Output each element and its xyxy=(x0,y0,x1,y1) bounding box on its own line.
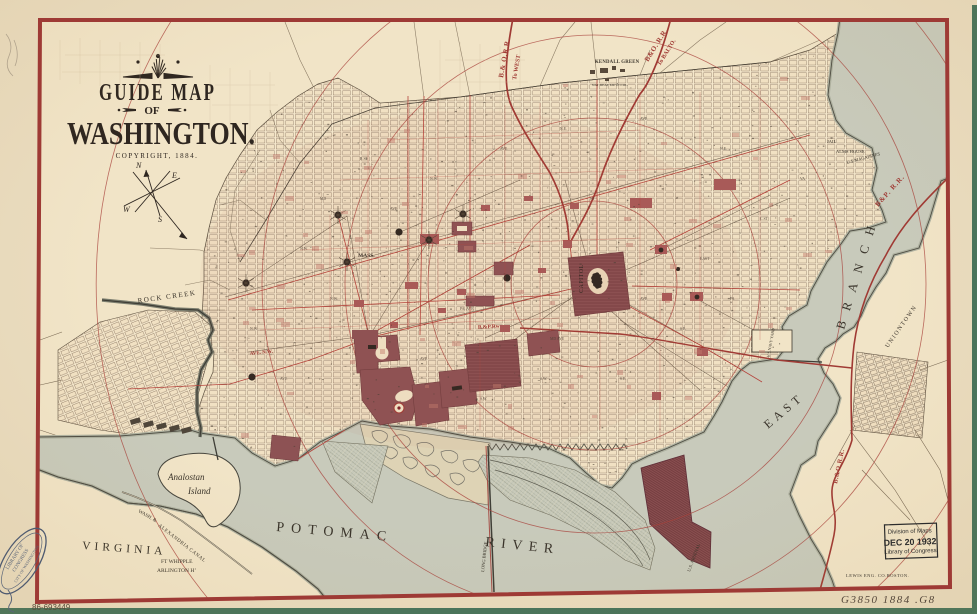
svg-text:LEWIS ENG. CO.BOSTON.: LEWIS ENG. CO.BOSTON. xyxy=(846,573,909,578)
svg-text:DEC 20 1932: DEC 20 1932 xyxy=(883,536,936,548)
svg-text:G3850 1884 .G8: G3850 1884 .G8 xyxy=(841,594,936,606)
svg-text:86-693449: 86-693449 xyxy=(32,603,71,612)
